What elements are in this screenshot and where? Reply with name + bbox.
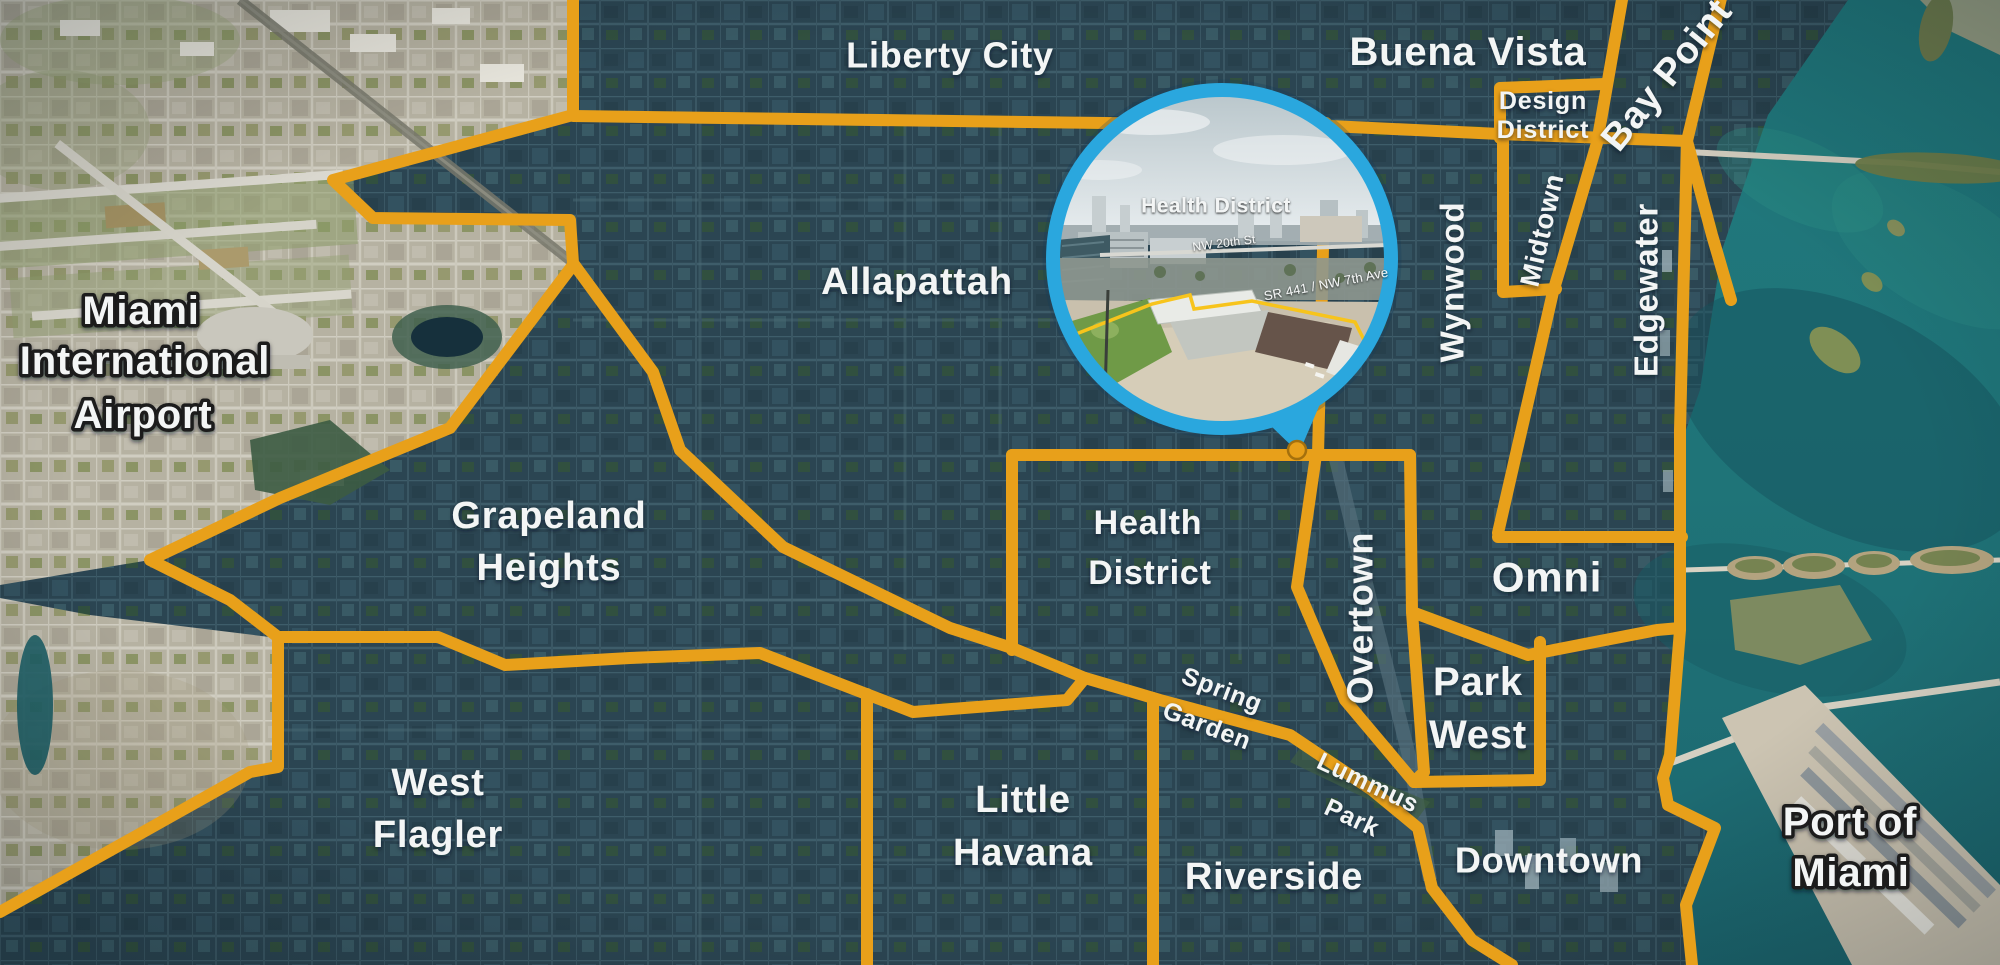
- map-label-allapattah: Allapattah: [821, 261, 1013, 303]
- map-label-health-district-2: District: [1088, 554, 1212, 592]
- map-label-port-of-miami-2: Miami: [1792, 851, 1909, 895]
- map-label-grapeland-2: Heights: [477, 547, 622, 589]
- map-label-buena-vista: Buena Vista: [1349, 30, 1586, 74]
- map-label-airport-2: International: [20, 339, 270, 383]
- map-label-riverside: Riverside: [1185, 856, 1363, 898]
- map-label-park-west-2: West: [1429, 713, 1527, 757]
- map-label-park-west-1: Park: [1433, 660, 1523, 704]
- map-label-grapeland-1: Grapeland: [451, 495, 646, 537]
- map-label-little-havana-1: Little: [975, 779, 1071, 821]
- map-label-west-flagler-2: Flagler: [373, 814, 503, 856]
- location-pin: [1288, 441, 1306, 459]
- map-label-airport-1: Miami: [82, 289, 199, 333]
- map-label-airport-3: Airport: [74, 393, 213, 437]
- map-stage: Liberty CityBuena VistaDesignDistrictBay…: [0, 0, 2000, 965]
- map-label-design-district-2: District: [1497, 116, 1590, 144]
- map-label-little-havana-2: Havana: [953, 832, 1093, 874]
- map-label-edgewater: Edgewater: [1628, 203, 1665, 377]
- map-label-wynwood: Wynwood: [1434, 202, 1471, 363]
- map-label-omni: Omni: [1492, 554, 1603, 601]
- map-label-inset-health-district: Health District: [1141, 195, 1291, 218]
- map-label-design-district-1: Design: [1499, 87, 1587, 115]
- map-label-health-district-1: Health: [1094, 504, 1203, 542]
- map-label-port-of-miami-1: Port of: [1783, 800, 1917, 844]
- map-label-downtown: Downtown: [1455, 840, 1643, 881]
- map-label-liberty-city: Liberty City: [846, 35, 1054, 76]
- map-label-overtown: Overtown: [1340, 532, 1381, 704]
- map-label-west-flagler-1: West: [391, 762, 484, 804]
- miami-neighborhood-map: Liberty CityBuena VistaDesignDistrictBay…: [0, 0, 2000, 965]
